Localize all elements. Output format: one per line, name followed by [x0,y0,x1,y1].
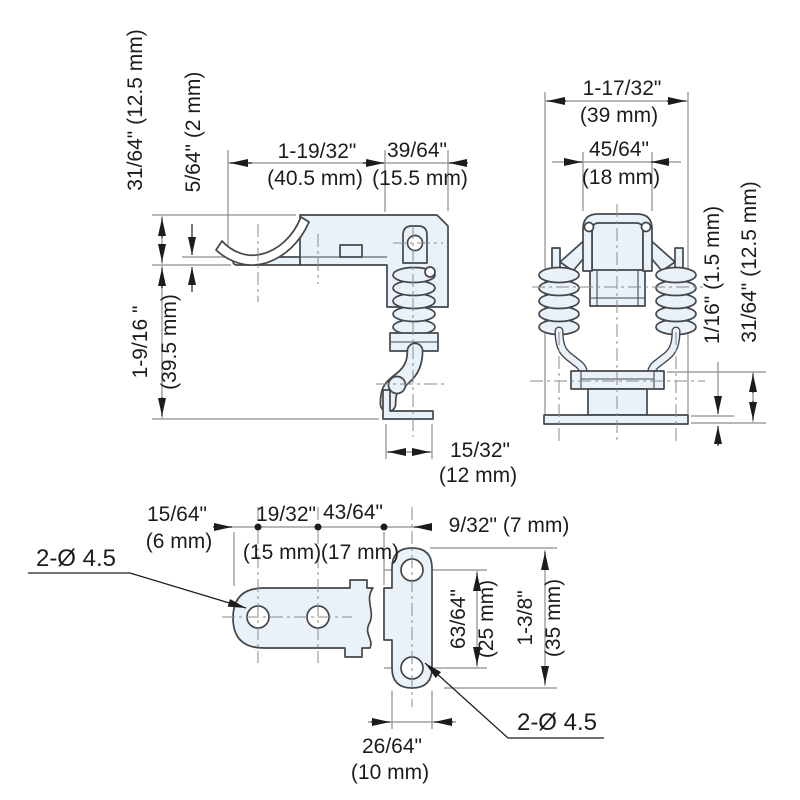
front-view-base-plate [544,415,688,424]
dim-bottom-plate-height-mm: (35 mm) [542,579,565,657]
dim-bottom-plate-height: 1-3/8" [514,590,537,645]
dim-bottom-edge-to-hole: 15/64" [147,503,207,526]
side-view-foot [383,390,433,419]
dim-side-width-top: 1-19/32" [278,140,357,163]
latch-technical-drawing: 1-19/32" (40.5 mm) 39/64" (15.5 mm) 31/6… [0,0,800,800]
side-view-rivet [389,377,406,394]
front-view-wire-end-left [585,223,594,232]
dim-front-width-inner-mm: (18 mm) [582,166,660,189]
side-view-spring [393,267,435,335]
dim-front-base-thickness: 1/16" (1.5 mm) [701,206,724,344]
bottom-plan-view [233,548,432,688]
dim-side-foot-width: 15/32" [450,439,510,462]
dim-side-body-height: 1-9/16 " [129,306,152,379]
dim-bottom-plate-width-mm: (10 mm) [351,761,429,784]
dim-bottom-vertical-spacing-mm: (25 mm) [475,580,498,658]
dim-bottom-edge-to-hole-mm: (6 mm) [146,530,213,553]
dim-side-width-right: 39/64" [387,139,447,162]
label-holes-right: 2-Ø 4.5 [517,709,597,736]
dim-side-foot-width-mm: (12 mm) [439,464,517,487]
dim-side-width-top-mm: (40.5 mm) [267,167,363,190]
dim-side-lip-gap: 5/64" (2 mm) [182,72,205,193]
label-holes-left: 2-Ø 4.5 [36,545,116,572]
front-view-wire-end-right [642,223,651,232]
dim-bottom-hole-spacing-mm: (15 mm) [243,541,321,564]
dim-bottom-hole-to-plate-mm: (17 mm) [321,541,399,564]
leader-holes-left [28,573,246,608]
dim-bottom-plate-offset: 9/32" (7 mm) [449,514,570,537]
technical-drawing-page: 1-19/32" (40.5 mm) 39/64" (15.5 mm) 31/6… [0,0,800,800]
dim-front-width-inner: 45/64" [589,138,649,161]
dim-bottom-vertical-spacing: 63/64" [447,589,470,649]
dim-side-body-height-mm: (39.5 mm) [158,294,181,390]
dim-bottom-hole-to-plate: 43/64" [323,501,383,524]
dim-bottom-plate-width: 26/64" [362,735,422,758]
front-view-spring-left [539,268,579,335]
dim-bottom-hole-spacing: 19/32" [256,503,316,526]
dim-side-width-right-mm: (15.5 mm) [372,167,468,190]
dim-side-lip-height: 31/64" (12.5 mm) [124,29,147,191]
dim-front-base-height: 31/64" (12.5 mm) [738,181,761,343]
side-view-tab [340,245,362,257]
dim-front-width-outer: 1-17/32" [583,77,662,100]
dim-front-width-outer-mm: (39 mm) [580,104,658,127]
front-view-spring-right [656,268,696,335]
